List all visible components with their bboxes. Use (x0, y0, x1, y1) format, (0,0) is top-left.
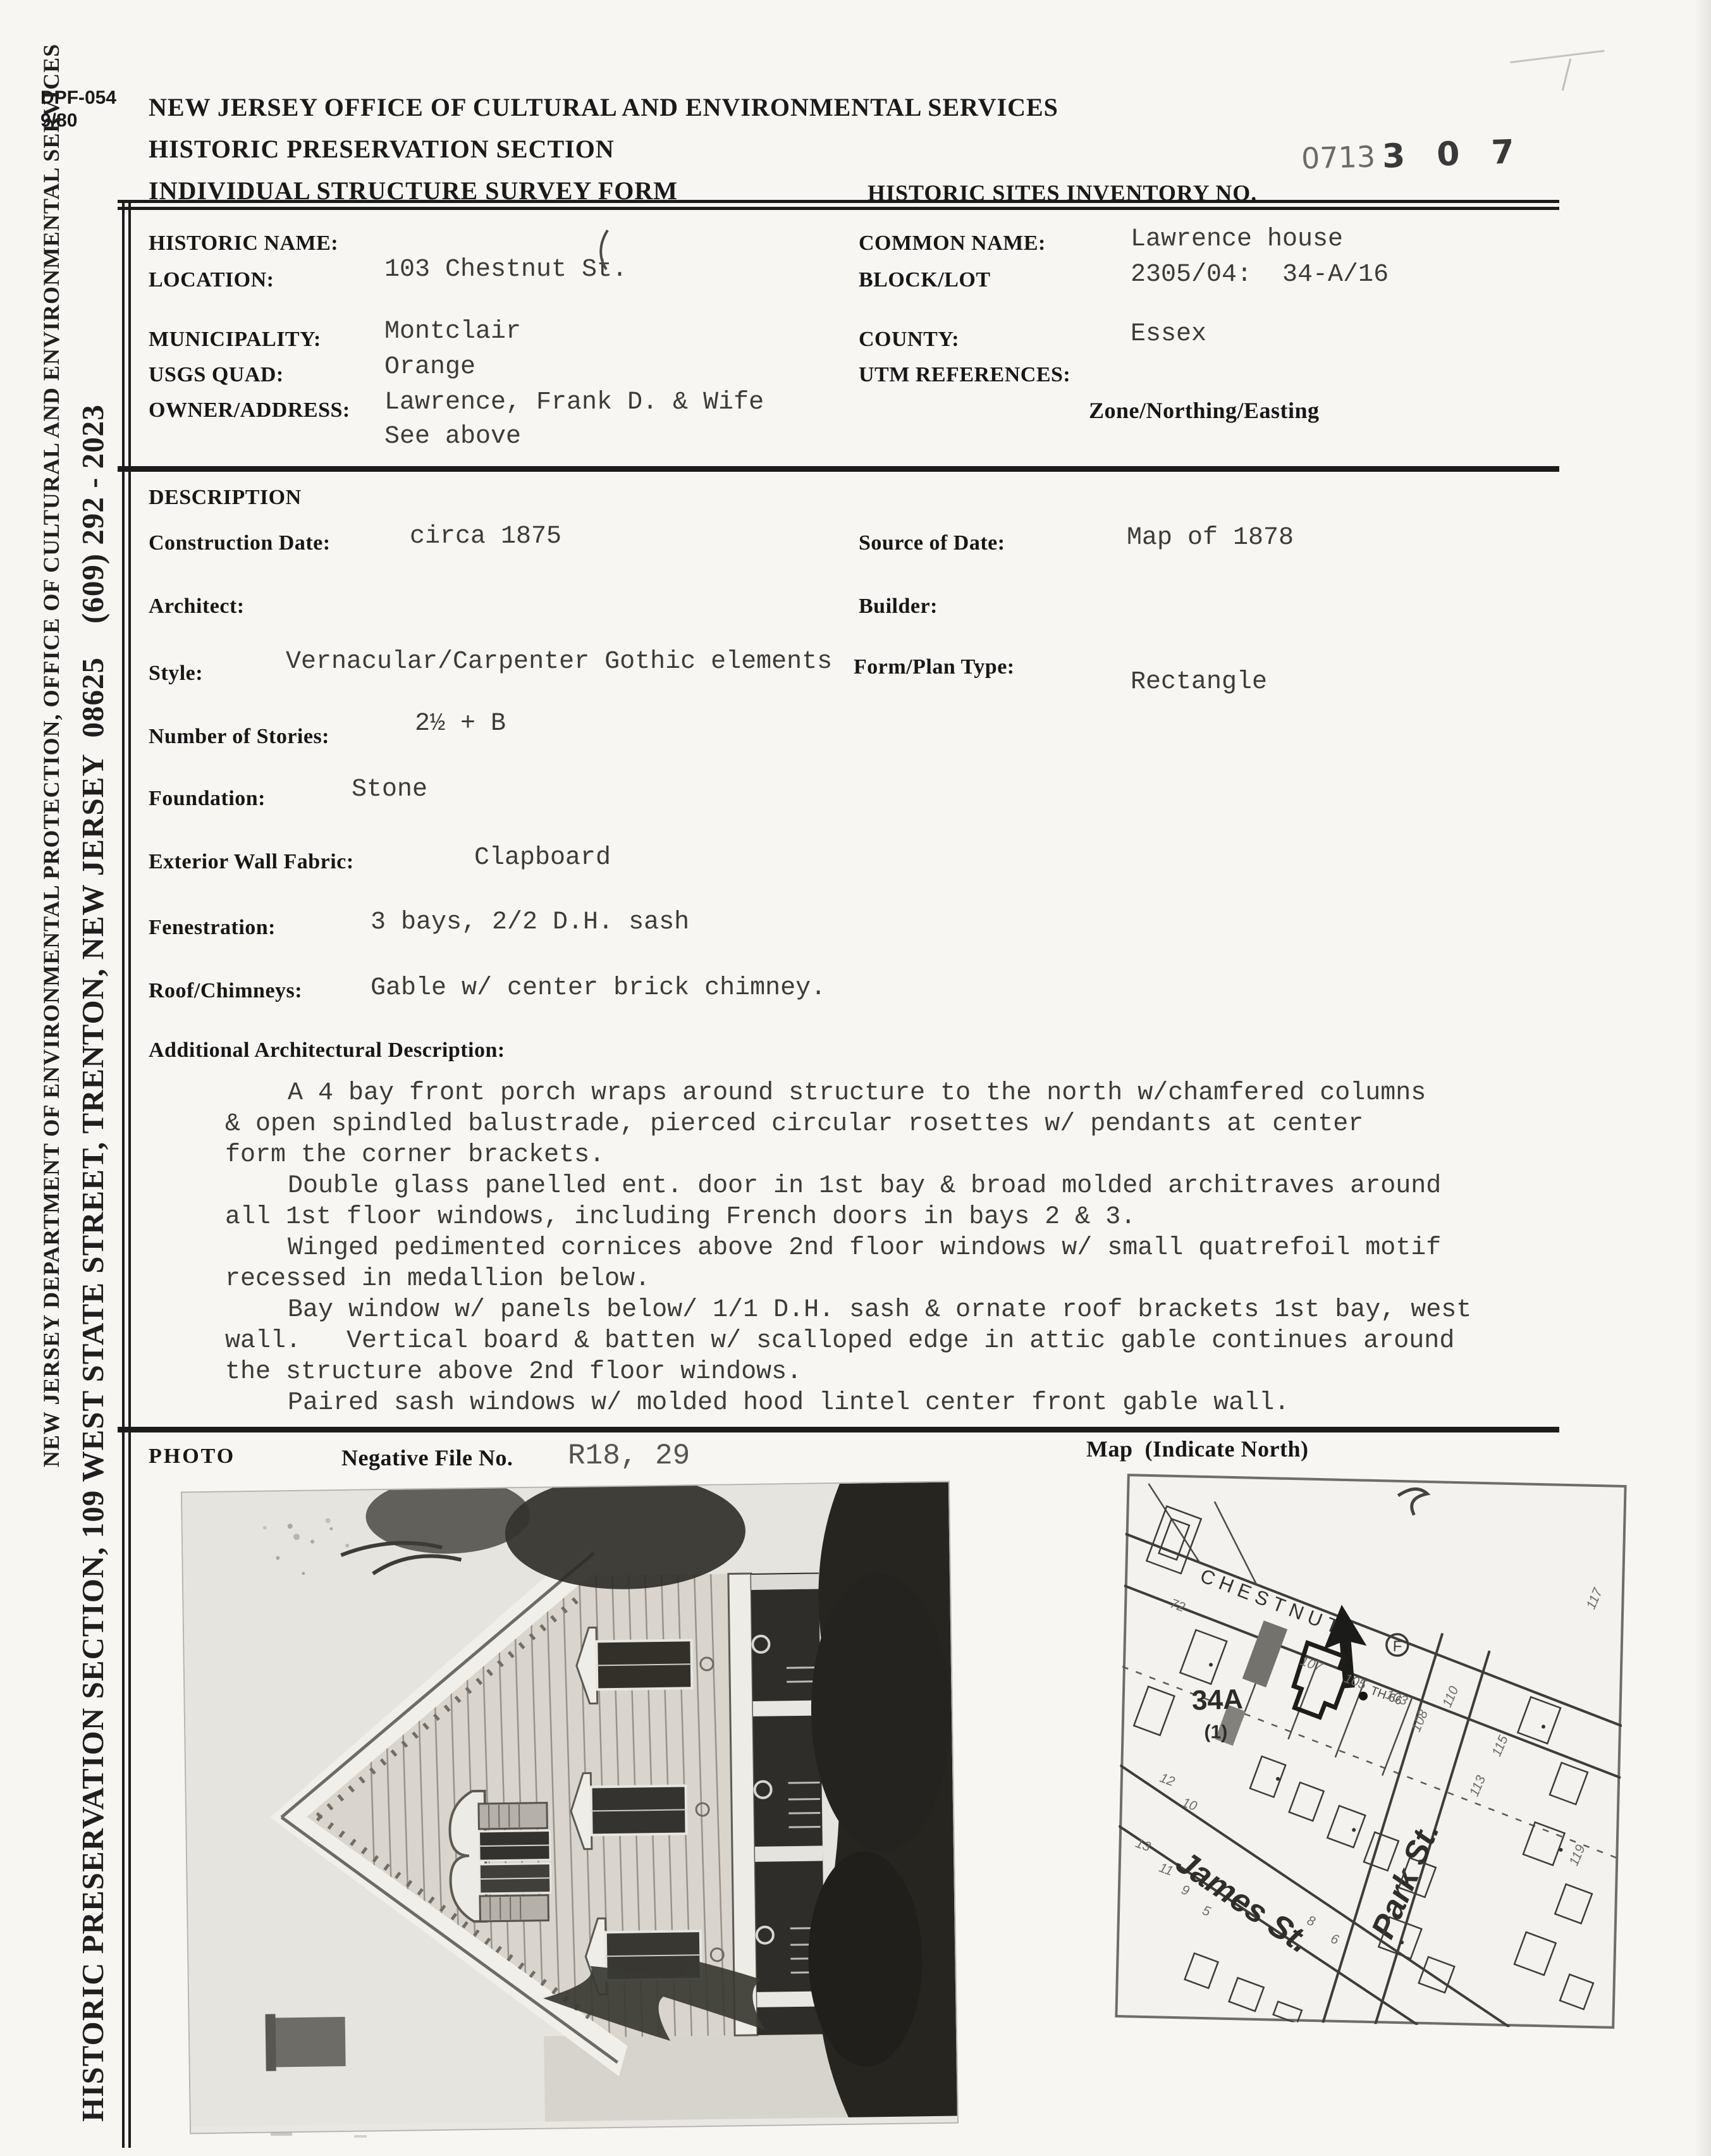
form-plan-type-label: Form/Plan Type: (854, 655, 1015, 679)
house-photograph (181, 1481, 959, 2134)
location-label: LOCATION: (149, 268, 274, 292)
sidebar-agency-address-line2: HISTORIC PRESERVATION SECTION, 109 WEST … (75, 378, 114, 2148)
style-label: Style: (149, 662, 203, 686)
parcel-label-34a: 34A (1191, 1684, 1243, 1716)
architect-label: Architect: (149, 594, 245, 619)
scan-artifact (1510, 50, 1604, 63)
county-label: COUNTY: (859, 328, 959, 352)
additional-description-line: form the corner brackets. (225, 1141, 604, 1169)
common-name-value: Lawrence house (1131, 225, 1343, 254)
exterior-wall-fabric-value: Clapboard (474, 844, 611, 872)
map-section-label: Map (Indicate North) (1086, 1436, 1308, 1462)
source-of-date-label: Source of Date: (859, 531, 1005, 555)
scan-artifact (1562, 58, 1571, 90)
builder-label: Builder: (859, 594, 938, 619)
header-rule (118, 207, 1559, 210)
additional-description-label: Additional Architectural Description: (149, 1038, 505, 1063)
inventory-number-value: 3 0 7 (1382, 133, 1525, 176)
scan-artifact (354, 2135, 367, 2138)
photo-section-label: PHOTO (149, 1445, 235, 1469)
municipality-label: MUNICIPALITY: (149, 328, 321, 352)
agency-title-line2: HISTORIC PRESERVATION SECTION (149, 134, 615, 164)
form-plan-type-value: Rectangle (1131, 668, 1267, 696)
source-of-date-value: Map of 1878 (1127, 524, 1294, 552)
additional-description-line: recessed in medallion below. (225, 1265, 650, 1293)
block-lot-label: BLOCK/LOT (859, 268, 991, 292)
section-rule (118, 1427, 1559, 1432)
construction-date-label: Construction Date: (149, 531, 331, 555)
utm-references-label: UTM REFERENCES: (859, 363, 1070, 387)
county-value: Essex (1131, 320, 1206, 348)
utm-zone-sublabel: Zone/Northing/Easting (1089, 397, 1320, 424)
parcel-sublabel: (1) (1204, 1722, 1227, 1743)
owner-value-line2: See above (384, 422, 521, 451)
left-margin-rule (122, 200, 125, 2148)
fenestration-value: 3 bays, 2/2 D.H. sash (371, 908, 689, 937)
historic-name-label: HISTORIC NAME: (149, 231, 338, 256)
inventory-number-prefix: 0713 (1301, 139, 1375, 175)
handwritten-tick (591, 228, 616, 278)
roof-chimneys-value: Gable w/ center brick chimney. (371, 974, 826, 1002)
survey-form-page: DPF-054 9/80 NEW JERSEY OFFICE OF CULTUR… (0, 0, 1711, 2156)
exterior-wall-fabric-label: Exterior Wall Fabric: (149, 850, 354, 874)
scan-artifact (271, 2133, 292, 2136)
style-value: Vernacular/Carpenter Gothic elements (286, 648, 832, 676)
section-rule (118, 466, 1559, 472)
foundation-label: Foundation: (149, 787, 266, 811)
additional-description-line: all 1st floor windows, including French … (225, 1203, 1136, 1231)
negative-file-value: R18, 29 (568, 1439, 690, 1472)
number-of-stories-value: 2½ + B (415, 710, 506, 738)
fenestration-label: Fenestration: (149, 916, 276, 940)
location-map: CHESTNUT James St. Park St. (1114, 1473, 1627, 2030)
usgs-quad-value: Orange (384, 353, 475, 381)
foundation-value: Stone (352, 775, 427, 804)
block-lot-value: 2305/04: 34-A/16 (1131, 261, 1389, 289)
description-section-label: DESCRIPTION (149, 486, 302, 510)
agency-title-line1: NEW JERSEY OFFICE OF CULTURAL AND ENVIRO… (149, 92, 1058, 122)
negative-file-label: Negative File No. (341, 1445, 513, 1471)
additional-description-line: A 4 bay front porch wraps around structu… (288, 1079, 1426, 1107)
common-name-label: COMMON NAME: (859, 231, 1046, 256)
landmark-f-label: F (1392, 1638, 1402, 1655)
house-photo-image (182, 1482, 957, 2133)
construction-date-value: circa 1875 (410, 522, 561, 551)
left-margin-rule (128, 200, 131, 2148)
owner-value-line1: Lawrence, Frank D. & Wife (384, 388, 764, 417)
number-of-stories-label: Number of Stories: (149, 725, 329, 749)
additional-description-line: Double glass panelled ent. door in 1st b… (288, 1172, 1441, 1200)
additional-description-line: the structure above 2nd floor windows. (225, 1358, 802, 1386)
municipality-value: Montclair (384, 317, 521, 346)
sidebar-agency-address-line1: NEW JERSEY DEPARTMENT OF ENVIRONMENTAL P… (38, 353, 67, 1467)
usgs-quad-label: USGS QUAD: (149, 363, 284, 387)
additional-description-line: Paired sash windows w/ molded hood linte… (288, 1389, 1289, 1417)
additional-description-line: wall. Vertical board & batten w/ scallop… (225, 1327, 1454, 1355)
roof-chimneys-label: Roof/Chimneys: (149, 979, 302, 1003)
additional-description-line: Winged pedimented cornices above 2nd flo… (288, 1234, 1441, 1262)
additional-description-line: & open spindled balustrade, pierced circ… (225, 1110, 1363, 1138)
location-map-image: CHESTNUT James St. Park St. (1114, 1473, 1627, 2030)
additional-description-line: Bay window w/ panels below/ 1/1 D.H. sas… (288, 1296, 1471, 1324)
owner-address-label: OWNER/ADDRESS: (149, 398, 350, 422)
header-rule (118, 200, 1559, 203)
